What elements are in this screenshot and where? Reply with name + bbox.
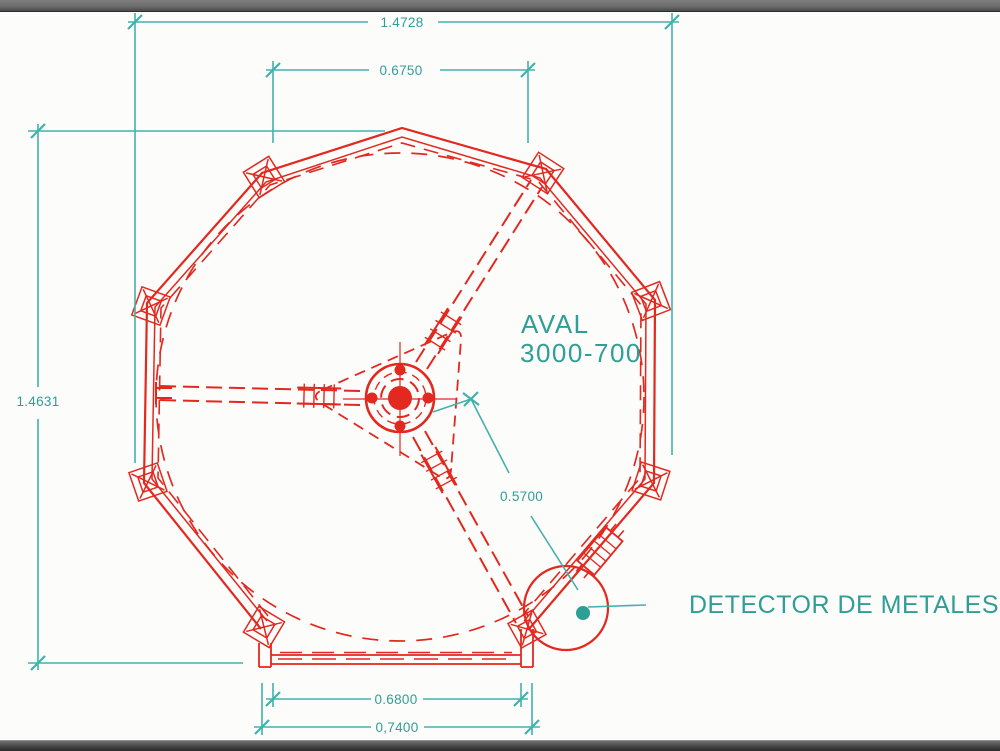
dim-label-detector-offset: 0.5700: [500, 489, 543, 504]
vertex-connector: [243, 606, 284, 647]
drawing-text: 1.4728 0.6750 1.4631 0.5700 0.6800 0,740…: [16, 15, 999, 735]
hub-shaft: [388, 386, 412, 410]
dim-label-base-inner: 0.6800: [374, 692, 417, 707]
dim-label-overall-width: 1.4728: [380, 15, 423, 30]
dim-overall-height: [28, 124, 385, 670]
product-name-label: AVAL: [521, 309, 590, 339]
spoke-bottom: [413, 431, 528, 623]
leader-metal-detector: [576, 605, 646, 620]
base-assembly: [259, 629, 533, 667]
vertex-connector: [132, 287, 170, 325]
metal-detector-callout-label: DETECTOR DE METALES: [689, 591, 999, 619]
cad-drawing: 1.4728 0.6750 1.4631 0.5700 0.6800 0,740…: [0, 0, 1000, 751]
edge-hatch-block: [572, 520, 629, 582]
vertex-connector: [243, 156, 284, 197]
dim-label-overall-height: 1.4631: [16, 394, 59, 409]
model-number-label: 3000-700: [520, 338, 642, 368]
dim-label-top-width: 0.6750: [379, 63, 422, 78]
center-hub: [343, 342, 457, 456]
dimension-linework: [28, 13, 679, 735]
leader-dot: [576, 606, 590, 620]
cad-viewer: 1.4728 0.6750 1.4631 0.5700 0.6800 0,740…: [0, 0, 1000, 751]
metal-detector-circle: [524, 566, 608, 650]
dim-label-base-outer: 0,7400: [375, 720, 418, 735]
